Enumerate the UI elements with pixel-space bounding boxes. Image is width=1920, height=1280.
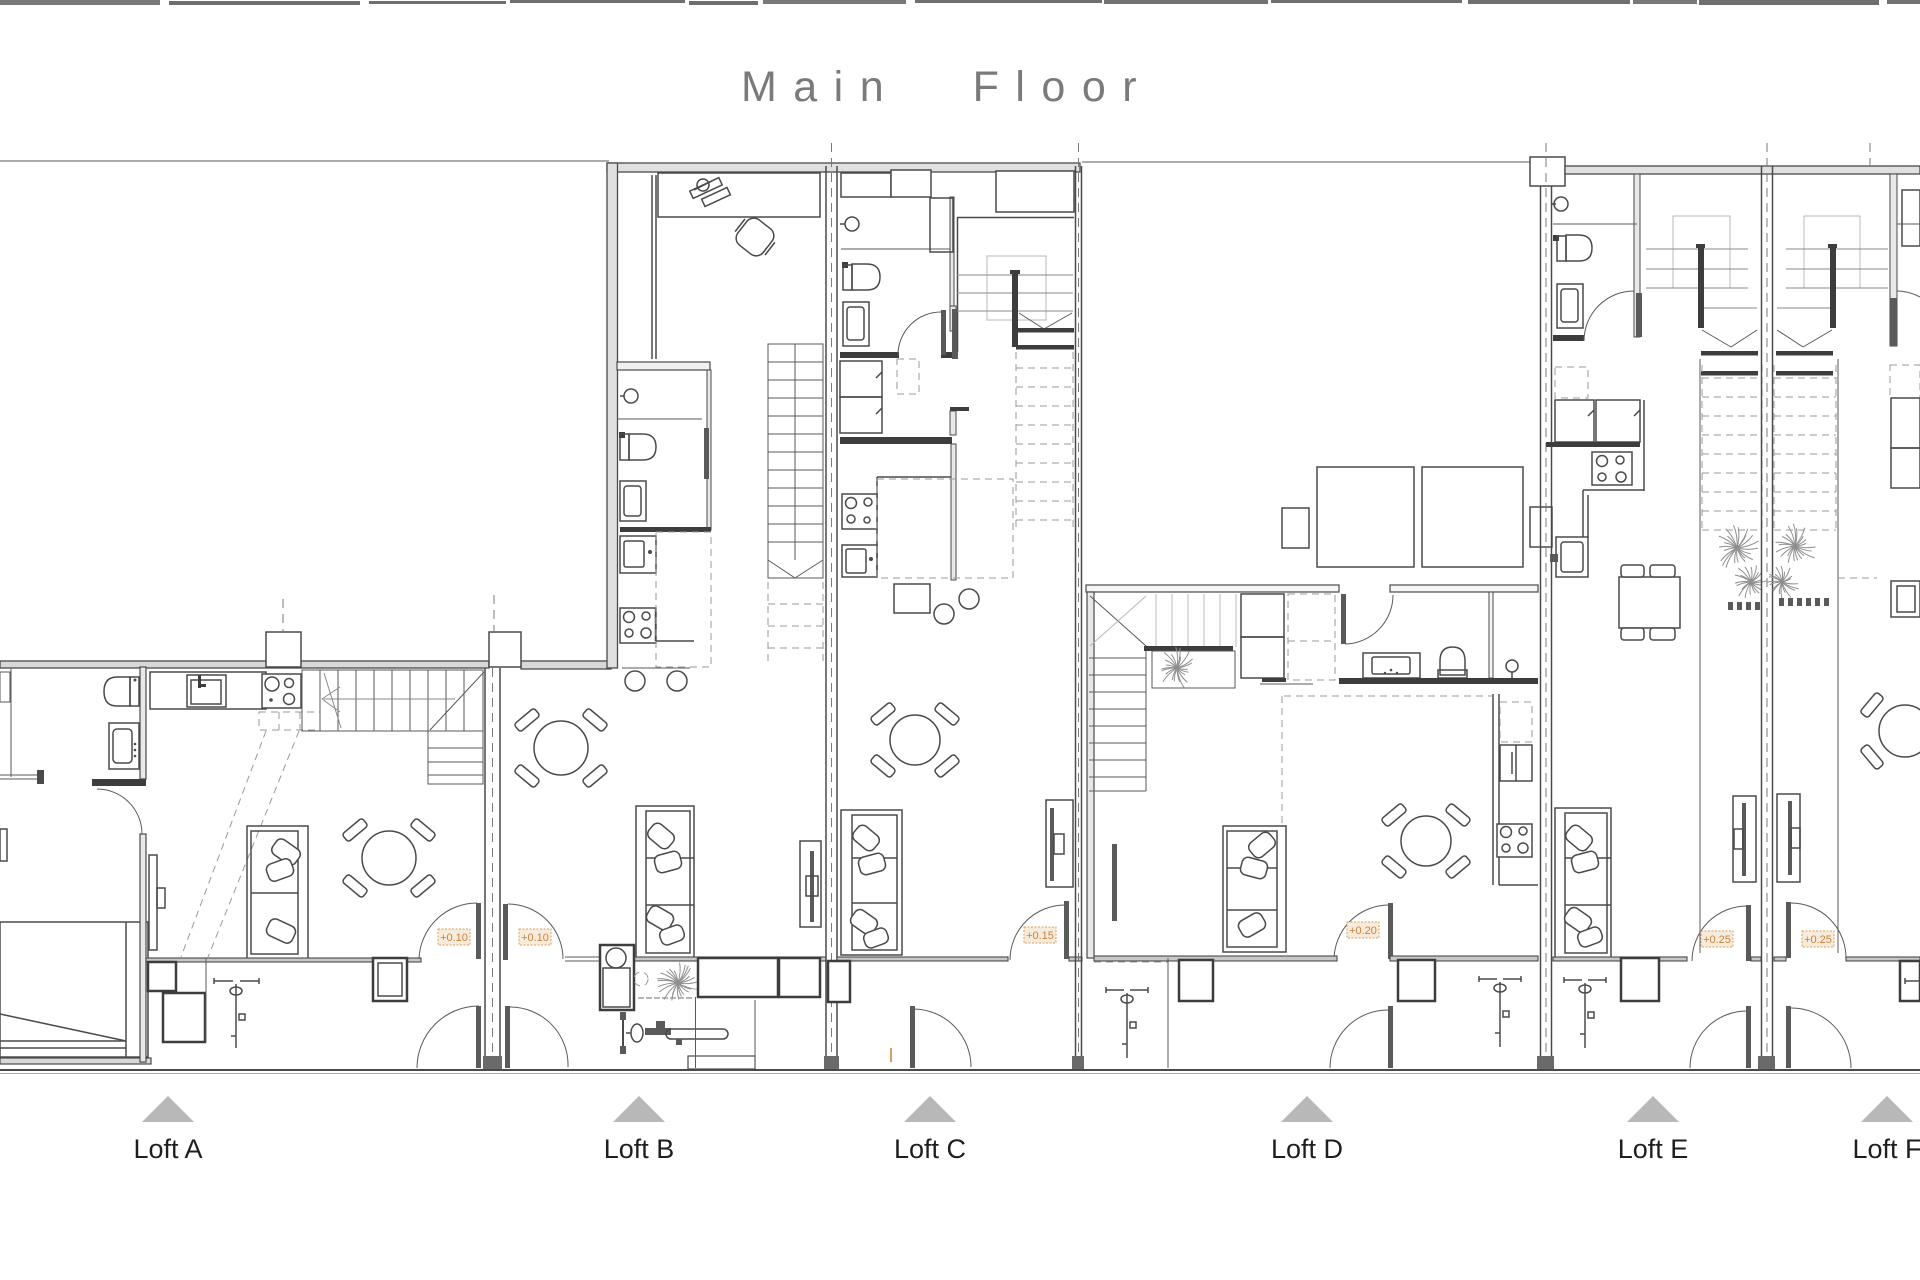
svg-text:+0.10: +0.10: [521, 932, 549, 944]
svg-text:Loft A: Loft A: [133, 1134, 202, 1164]
svg-text:+0.15: +0.15: [1026, 930, 1054, 942]
svg-text:Loft B: Loft B: [604, 1134, 675, 1164]
svg-text:Loft C: Loft C: [894, 1134, 966, 1164]
svg-text:Loft D: Loft D: [1271, 1134, 1343, 1164]
svg-text:+0.20: +0.20: [1349, 925, 1377, 937]
svg-text:+0.25: +0.25: [1703, 934, 1731, 946]
svg-text:Loft F: Loft F: [1852, 1134, 1920, 1164]
svg-text:Main Floor: Main Floor: [741, 63, 1153, 111]
svg-text:+0.25: +0.25: [1804, 934, 1832, 946]
svg-text:Loft E: Loft E: [1618, 1134, 1689, 1164]
svg-text:+0.10: +0.10: [440, 932, 468, 944]
